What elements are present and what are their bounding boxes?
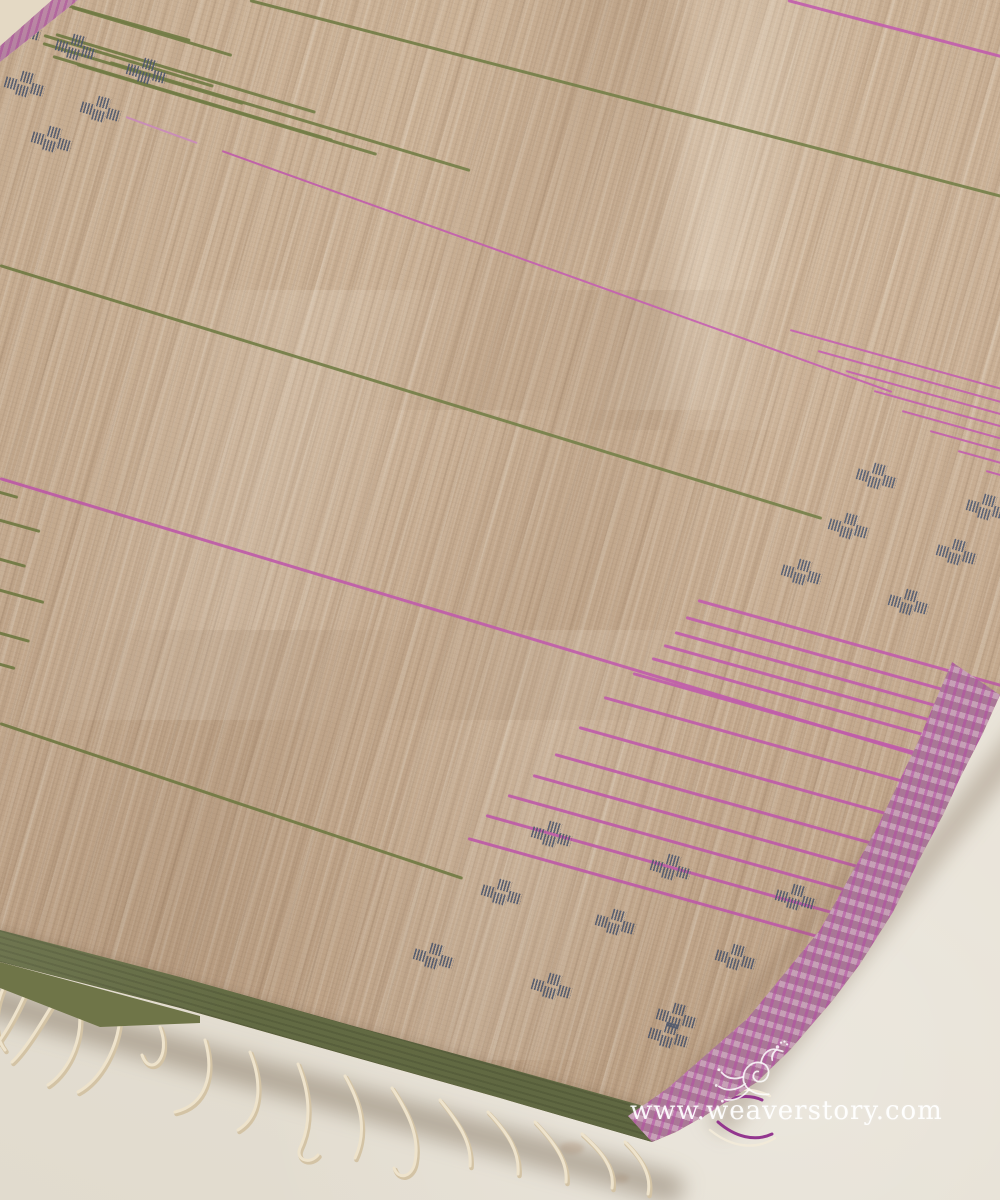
tassel-strand	[718, 1122, 772, 1138]
tassel-strand	[298, 1064, 318, 1160]
tassel-strand	[80, 1018, 122, 1094]
tassel-strand	[392, 1088, 416, 1176]
tassel-strand	[490, 1114, 520, 1176]
saree-product-photo: www.weaverstory.com	[0, 0, 1000, 1200]
tassel-strand	[625, 1142, 649, 1194]
tassel-strand	[175, 1040, 209, 1112]
tassel-strand	[142, 1027, 164, 1065]
tassel-strand	[584, 1136, 614, 1190]
tassel-strand	[442, 1102, 472, 1168]
tassel-strand	[537, 1124, 568, 1184]
tassel-strand	[535, 1122, 566, 1182]
